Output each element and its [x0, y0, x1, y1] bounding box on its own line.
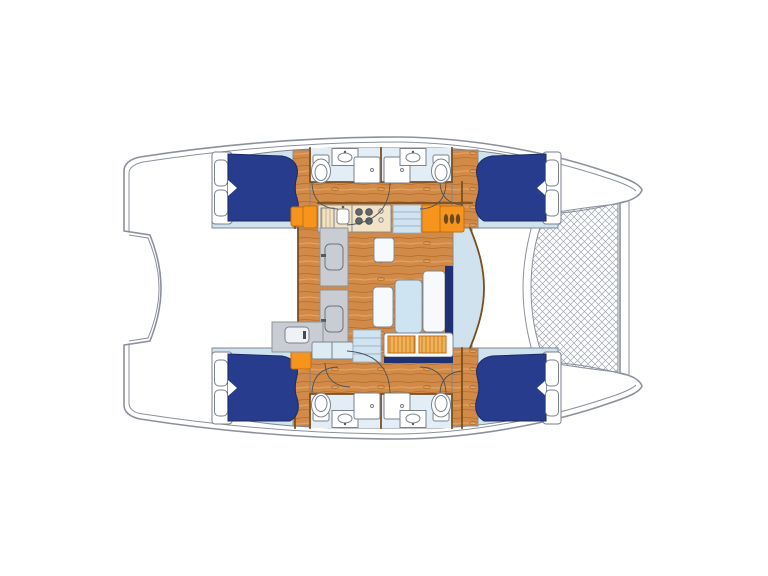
settee-cushion	[395, 280, 422, 333]
toilet	[312, 393, 331, 421]
pillow	[546, 360, 559, 386]
floor-plan-canvas	[0, 0, 768, 576]
step	[353, 330, 381, 338]
pillow	[546, 160, 559, 186]
bed-duvet	[476, 154, 546, 221]
shower	[354, 157, 380, 183]
washbasin	[400, 149, 426, 166]
pillow	[215, 360, 228, 386]
step	[393, 212, 421, 219]
toilet	[312, 155, 331, 183]
bench-cushion	[388, 336, 415, 353]
galley-basin	[337, 209, 349, 224]
cabin-stbd-aft-bed	[212, 352, 298, 424]
shower	[354, 393, 380, 419]
steps-to-stbd-hull	[353, 330, 381, 362]
toilet	[432, 155, 451, 183]
pillow	[215, 160, 228, 186]
bow-crossbeam	[620, 201, 629, 375]
burner	[366, 209, 373, 216]
pillow	[215, 390, 228, 416]
step	[353, 338, 381, 346]
bow-net	[531, 204, 618, 372]
aft-bench	[384, 333, 453, 363]
pillow	[546, 190, 559, 216]
step	[393, 205, 421, 212]
step	[393, 219, 421, 226]
cabin-port-fwd-bed	[476, 152, 561, 224]
galley-orange-unit	[422, 205, 440, 232]
wet-bar-faucet	[303, 331, 306, 339]
table	[373, 287, 393, 327]
settee-backrest	[423, 271, 445, 332]
cabin-port-aft-bed	[212, 152, 298, 224]
steps-to-port-hull	[393, 205, 421, 233]
step	[393, 226, 421, 233]
seat	[374, 238, 394, 262]
burner	[356, 209, 363, 216]
bed-duvet	[228, 154, 298, 221]
bench-trim	[384, 357, 453, 363]
locker-galley-end	[303, 206, 317, 228]
door-handle	[321, 254, 326, 257]
pillow	[546, 390, 559, 416]
cabin-stbd-fwd-bed	[476, 352, 561, 424]
washbasin	[400, 411, 426, 428]
galley-faucet	[342, 206, 345, 209]
toilet	[432, 393, 451, 421]
drainer	[321, 208, 334, 229]
bed-duvet	[228, 354, 298, 421]
locker-stbd-aft	[291, 350, 311, 369]
floor-stbd-fwd	[452, 348, 478, 426]
locker-port-fwd	[440, 206, 464, 232]
catamaran-plan-svg	[0, 0, 768, 576]
pillow	[215, 190, 228, 216]
bed-duvet	[476, 354, 546, 421]
bench-cushion	[419, 336, 446, 353]
